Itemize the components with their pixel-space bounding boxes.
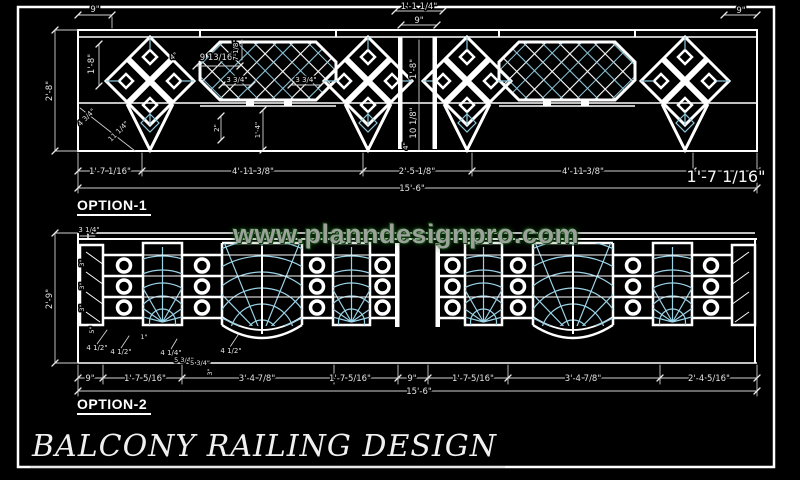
dim-label: 1'-7 5/16" xyxy=(124,374,166,384)
dim-label: 4 1/2" xyxy=(220,347,241,355)
dim-label: 2'-5 1/8" xyxy=(399,167,436,177)
dim-label: 9" xyxy=(85,374,94,384)
dim-label: 4 1/2" xyxy=(110,348,131,356)
option1-label: OPTION-1 xyxy=(77,197,151,216)
dim-label: 4 1/2" xyxy=(86,344,107,352)
dim-label: 1'-7 5/16" xyxy=(452,374,494,384)
dim-label: 9" xyxy=(414,16,423,26)
dim-label: 1'-7 1/16" xyxy=(89,167,131,177)
option2-edges xyxy=(78,233,757,363)
dim-label: 3" xyxy=(78,259,86,266)
dim-label: 3'-4 7/8" xyxy=(239,374,276,384)
dim-label: 4'-11 3/8" xyxy=(562,167,604,177)
dim-label: 4 3/4" xyxy=(76,107,97,128)
dim-label: 3" xyxy=(78,304,86,311)
dim-label: 5" xyxy=(88,326,96,333)
option1-right-panel xyxy=(423,30,729,150)
dim-label: 4" xyxy=(402,142,410,150)
dim-label-large: 1'-7 1/16" xyxy=(687,167,766,186)
option2-drawing xyxy=(78,231,757,432)
dim-label: 3 1/4" xyxy=(78,226,99,234)
dim-label: 1'-1 1/4" xyxy=(401,2,438,12)
dim-label: 5 3/4" xyxy=(190,359,210,367)
dim-label: 2'-8" xyxy=(45,81,55,101)
dim-label: 9" xyxy=(90,5,99,15)
dim-label: 1'-7 5/16" xyxy=(329,374,371,384)
dim-label: 4'-11 3/8" xyxy=(232,167,274,177)
dim-label: 3 3/4" xyxy=(226,76,247,84)
dim-label: 1'-8" xyxy=(87,54,97,74)
dim-label: 2'-9" xyxy=(45,289,55,309)
dim-label: 9" xyxy=(407,374,416,384)
dimension-ticks-option1 xyxy=(52,8,760,191)
dimension-lines-option2 xyxy=(55,233,757,396)
dim-label: 3" xyxy=(206,368,214,375)
option2-outline xyxy=(78,233,757,363)
watermark: www.planndesignpro.com xyxy=(233,219,593,250)
dim-label: 1'-4" xyxy=(254,122,262,139)
dim-label: 2" xyxy=(213,124,221,132)
dim-label: 15'-6" xyxy=(406,387,432,397)
drawing-sheet: 9" 1'-1 1/4" 9" 9" 2'-8" 1'-8" 4 3/4" 11… xyxy=(0,0,800,480)
dim-label: 9" xyxy=(736,6,745,16)
option2-right-panel xyxy=(411,231,755,432)
dim-label: 9 13/16" xyxy=(200,53,237,63)
dim-label: 2'-4 5/16" xyxy=(688,374,730,384)
dim-label: 1'-8" xyxy=(409,59,419,79)
dim-label: 1" xyxy=(140,333,147,341)
dim-label: 10 1/8" xyxy=(409,107,419,138)
dimension-lines-option1 xyxy=(55,11,757,193)
page-title: BALCONY RAILING DESIGN xyxy=(30,429,505,468)
option2-label: OPTION-2 xyxy=(77,396,151,415)
dim-label: 3" xyxy=(78,282,86,289)
dim-label: 15'-6" xyxy=(399,184,425,194)
dim-label: 3 3/4" xyxy=(295,76,316,84)
dim-label: 7 1/8" xyxy=(232,39,240,60)
dim-label: 3'-4 7/8" xyxy=(565,374,602,384)
